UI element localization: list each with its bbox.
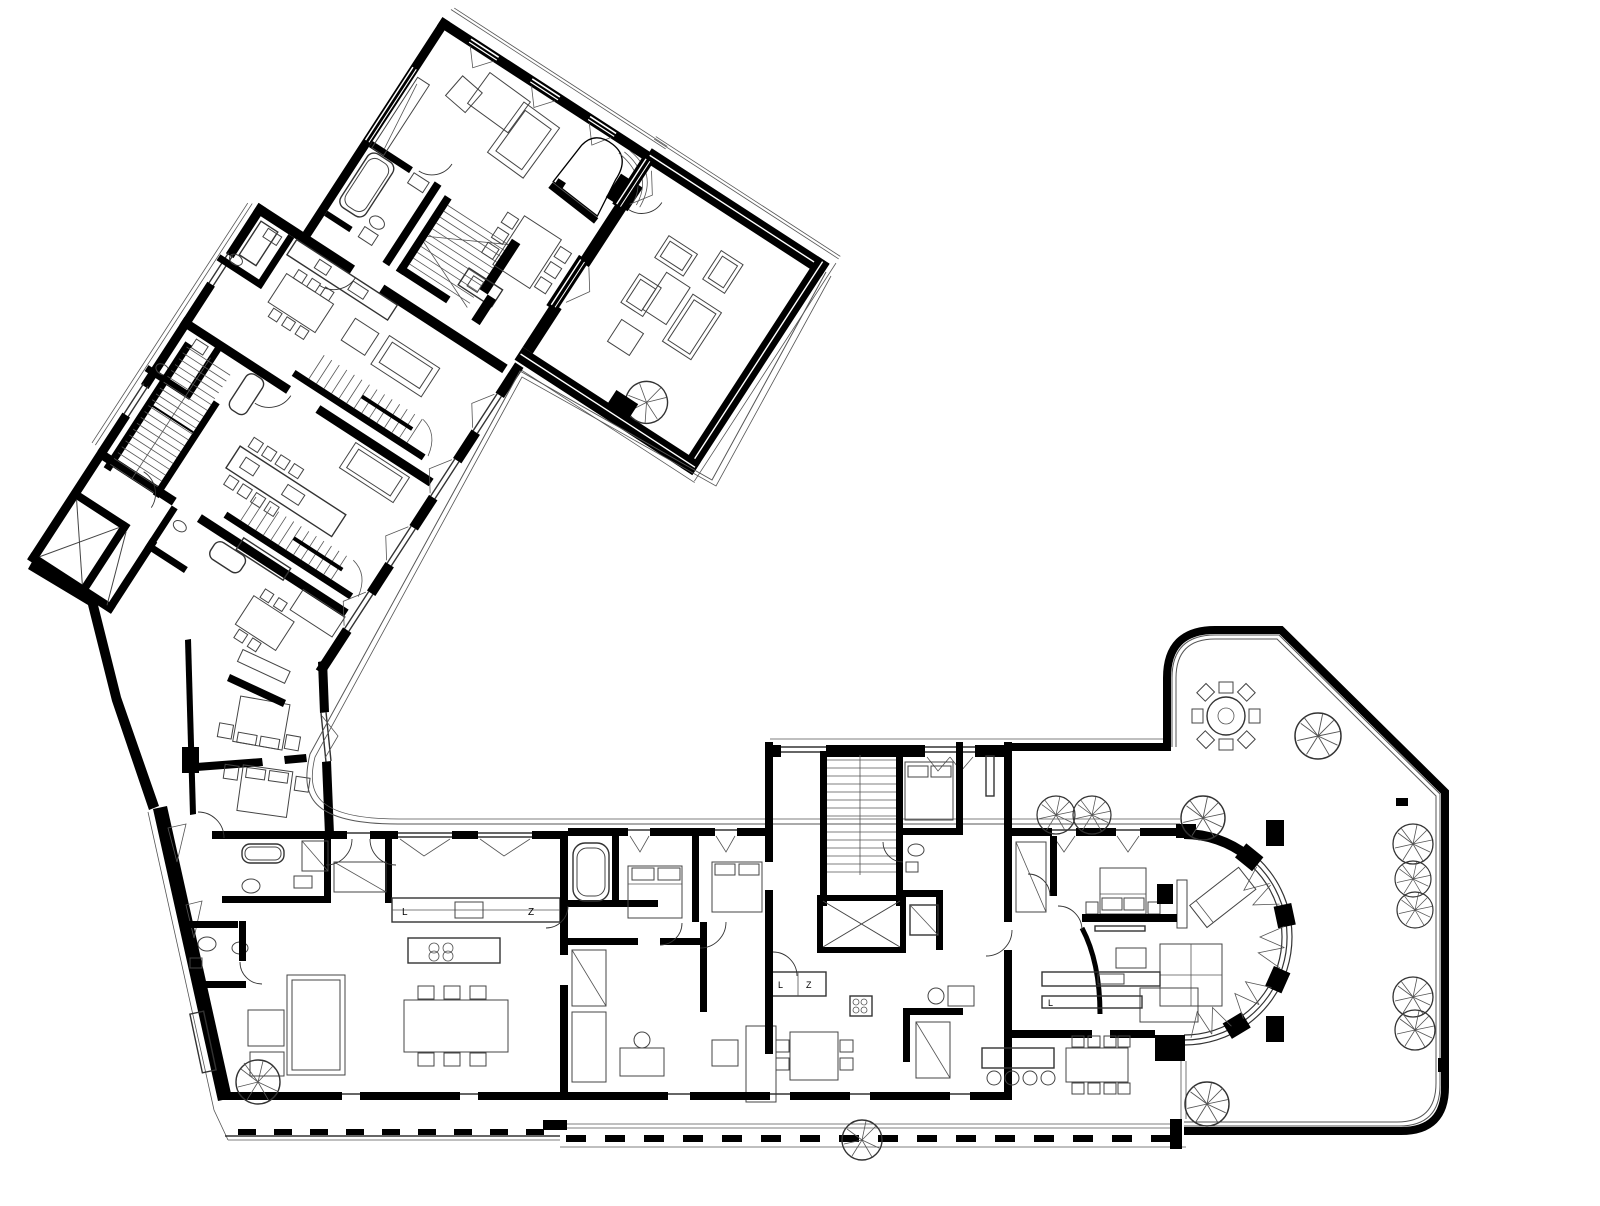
svg-text:Z: Z bbox=[806, 980, 812, 990]
svg-text:Z: Z bbox=[528, 907, 534, 918]
svg-text:L: L bbox=[402, 907, 408, 918]
svg-text:L: L bbox=[1048, 998, 1053, 1008]
svg-text:L: L bbox=[778, 980, 783, 990]
